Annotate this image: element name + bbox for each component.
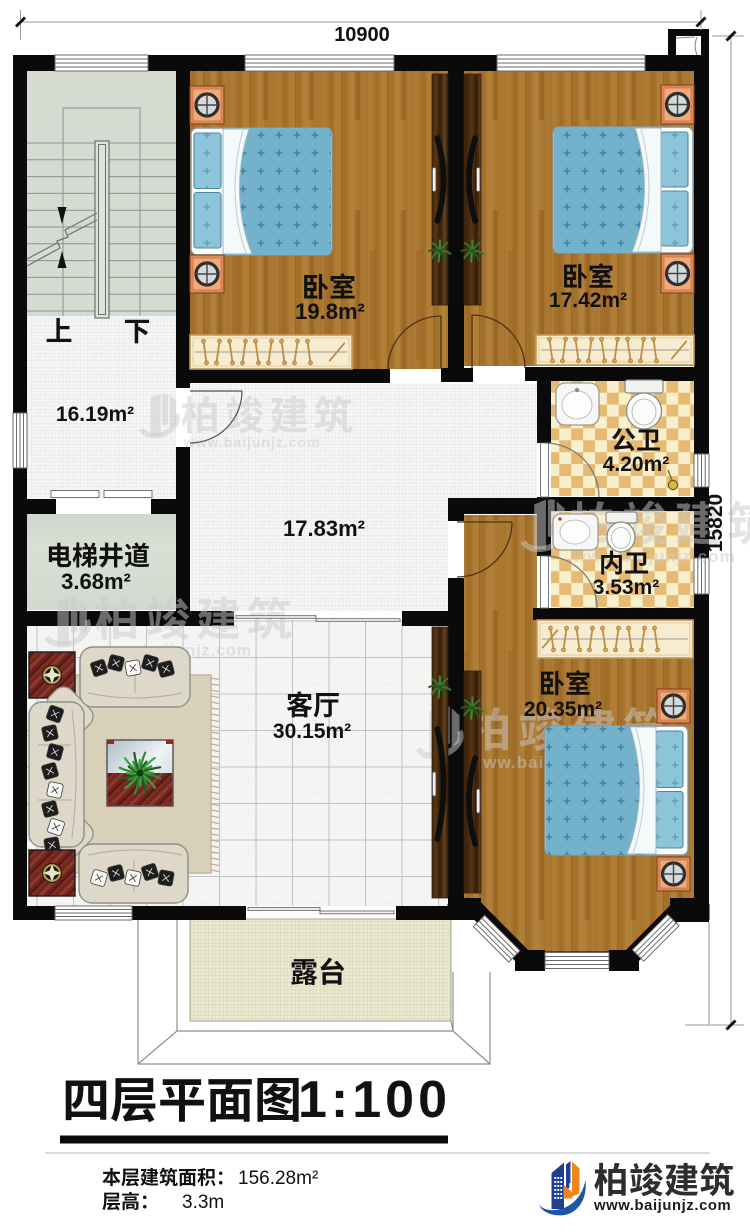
svg-text:3.53m²: 3.53m² bbox=[593, 576, 660, 599]
svg-text:建: 建 bbox=[664, 1153, 699, 1204]
svg-text:电梯井道: 电梯井道 bbox=[46, 536, 150, 573]
svg-text:柏: 柏 bbox=[181, 385, 220, 441]
svg-text:筑: 筑 bbox=[314, 385, 353, 441]
svg-text:柏: 柏 bbox=[593, 1153, 628, 1204]
svg-text:竣: 竣 bbox=[225, 385, 264, 441]
svg-text:层高：: 层高： bbox=[102, 1187, 159, 1214]
svg-text:筑: 筑 bbox=[727, 489, 750, 555]
svg-text:3.68m²: 3.68m² bbox=[61, 569, 131, 594]
svg-text:下: 下 bbox=[124, 310, 151, 349]
svg-text:客厅: 客厅 bbox=[286, 684, 340, 723]
svg-text:竣: 竣 bbox=[629, 1153, 664, 1204]
svg-text:上: 上 bbox=[46, 310, 73, 349]
svg-text:www.baijunjz.com: www.baijunjz.com bbox=[593, 1198, 731, 1214]
svg-text:卧室: 卧室 bbox=[539, 664, 591, 701]
svg-text:10900: 10900 bbox=[334, 24, 390, 46]
svg-text:15820: 15820 bbox=[704, 494, 727, 552]
svg-text:建: 建 bbox=[196, 583, 241, 648]
svg-text:www.baijunjz.com: www.baijunjz.com bbox=[183, 434, 321, 450]
svg-text:17.42m²: 17.42m² bbox=[549, 289, 627, 312]
svg-text:竣: 竣 bbox=[145, 583, 190, 648]
svg-text:17.83m²: 17.83m² bbox=[283, 516, 365, 541]
svg-text:1:100: 1:100 bbox=[298, 1071, 451, 1129]
svg-text:筑: 筑 bbox=[699, 1153, 734, 1204]
svg-text:露台: 露台 bbox=[290, 951, 346, 991]
svg-text:156.28m²: 156.28m² bbox=[238, 1168, 318, 1189]
svg-text:建: 建 bbox=[270, 385, 309, 441]
svg-text:16.19m²: 16.19m² bbox=[56, 403, 134, 426]
svg-text:四层平面图: 四层平面图 bbox=[62, 1061, 302, 1131]
svg-text:30.15m²: 30.15m² bbox=[273, 720, 351, 743]
svg-text:本层建筑面积：: 本层建筑面积： bbox=[102, 1163, 235, 1190]
svg-text:4.20m²: 4.20m² bbox=[603, 453, 670, 476]
svg-text:20.35m²: 20.35m² bbox=[524, 698, 602, 721]
svg-text:3.3m: 3.3m bbox=[182, 1192, 224, 1213]
svg-text:19.8m²: 19.8m² bbox=[295, 299, 365, 324]
